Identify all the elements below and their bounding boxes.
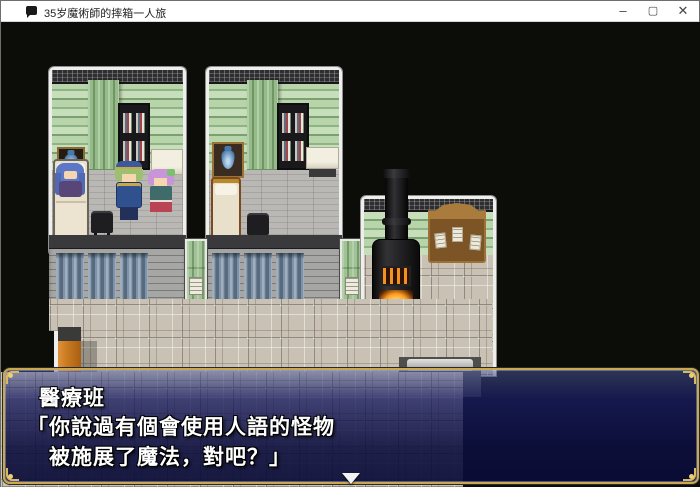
close-button[interactable]: ✕ — [667, 1, 699, 22]
stove-grill — [381, 266, 411, 286]
notice-board — [428, 215, 486, 263]
face — [122, 174, 136, 182]
frame-corner-icon — [683, 371, 696, 384]
minimize-button[interactable]: – — [607, 1, 639, 22]
blue-curtain — [244, 253, 272, 301]
red-skirt — [150, 200, 172, 212]
black-chair — [91, 211, 113, 233]
shelf-divider — [132, 105, 136, 168]
blue-vase-icon — [222, 150, 235, 169]
chimney-cap — [382, 169, 411, 178]
chimney-joint — [382, 218, 411, 225]
notice-paper — [434, 232, 447, 248]
black-chair — [247, 213, 269, 235]
blue-curtain — [276, 253, 304, 301]
shelf-divider — [291, 105, 295, 168]
green-curtain — [247, 80, 278, 172]
speech-bubble-icon — [26, 6, 37, 15]
blue-curtain — [56, 253, 84, 301]
door-sign — [189, 277, 203, 295]
door-sign — [345, 277, 359, 295]
notice-paper — [452, 227, 463, 242]
beret — [116, 161, 142, 169]
title-bar[interactable]: 35岁魔術師的摔箱一人旅 – ▢ ✕ — [1, 1, 699, 22]
window-title: 35岁魔術師的摔箱一人旅 — [44, 5, 166, 21]
blue-curtain — [212, 253, 240, 301]
speaker-name: 醫療班 — [39, 382, 105, 412]
uniform — [116, 182, 142, 208]
blanket — [56, 201, 86, 237]
soldier-character — [114, 161, 144, 227]
pink-haired-nurse — [147, 169, 175, 215]
dialogue-line: 「你說過有個會使用人語的怪物 — [27, 411, 335, 441]
green-ribbon — [167, 169, 175, 176]
blue-curtain — [88, 253, 116, 301]
notice-paper — [469, 235, 481, 251]
dialogue-window[interactable]: 醫療班 「你說過有個會使用人語的怪物 被施展了魔法，對吧？」 — [3, 368, 699, 484]
blue-haired-patient — [55, 163, 85, 205]
frame-corner-icon — [683, 468, 696, 481]
hall-wall-top — [206, 235, 342, 249]
doorway-dark — [58, 327, 81, 341]
face — [64, 171, 77, 179]
continue-arrow-icon[interactable] — [342, 473, 360, 484]
game-screen[interactable]: 醫療班 「你說過有個會使用人語的怪物 被施展了魔法，對吧？」 — [1, 22, 700, 487]
green-curtain — [88, 80, 119, 172]
dialogue-line: 被施展了魔法，對吧？」 — [27, 441, 291, 471]
hall-wall-top — [49, 235, 186, 249]
bookshelf — [118, 103, 150, 170]
bookshelf — [277, 103, 309, 170]
face — [154, 178, 167, 186]
table-legs — [309, 169, 336, 177]
legs — [120, 208, 138, 220]
purple-cloak — [59, 181, 82, 197]
chimney-pipe — [385, 178, 408, 242]
vase-cabinet — [212, 142, 244, 178]
side-table — [306, 147, 339, 169]
blue-curtain — [120, 253, 148, 301]
maximize-button[interactable]: ▢ — [637, 1, 669, 22]
game-window: 35岁魔術師的摔箱一人旅 – ▢ ✕ — [0, 0, 700, 487]
frame-corner-icon — [6, 468, 19, 481]
pillow — [215, 184, 237, 195]
frame-corner-icon — [6, 371, 19, 384]
